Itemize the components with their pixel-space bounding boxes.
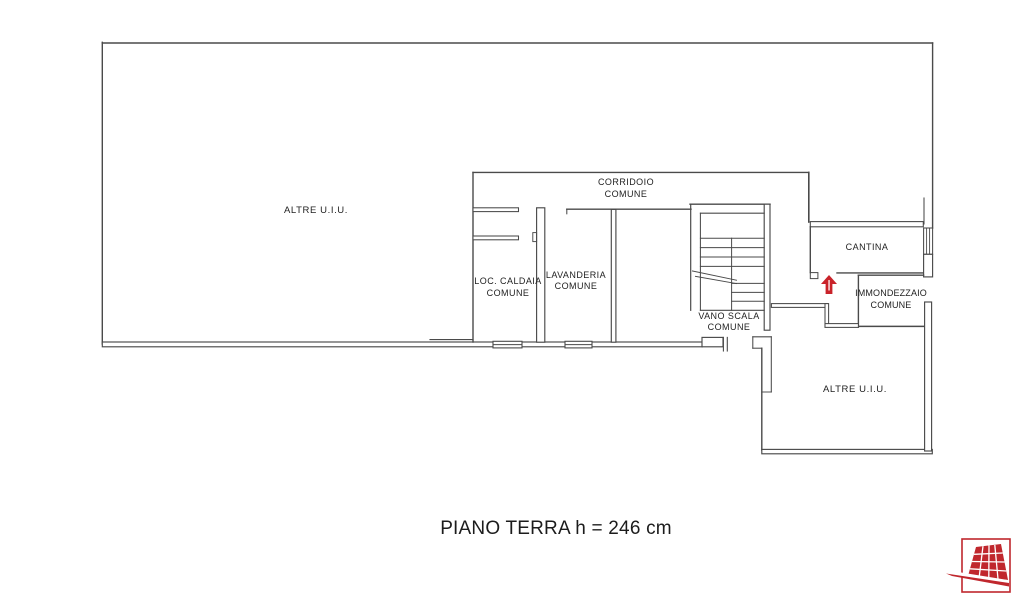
room-label-altre-left: ALTRE U.I.U. [284, 205, 348, 217]
corridoio-line2: COMUNE [598, 189, 654, 201]
vano-scala-line2: COMUNE [698, 323, 759, 335]
room-label-immondezzaio: IMMONDEZZAIO COMUNE [855, 288, 927, 312]
floor-plan-canvas: ALTRE U.I.U. CORRIDOIO COMUNE LOC. CALDA… [0, 0, 1024, 601]
brand-logo-icon [946, 536, 1014, 596]
plan-title: PIANO TERRA h = 246 cm [440, 518, 672, 540]
room-label-vano-scala: VANO SCALA COMUNE [698, 311, 759, 335]
room-label-corridoio: CORRIDOIO COMUNE [598, 177, 654, 201]
cantina-text: CANTINA [846, 242, 889, 254]
loc-caldaia-line2: COMUNE [474, 288, 541, 300]
immondezzaio-line1: IMMONDEZZAIO [855, 288, 927, 300]
entrance-arrow-icon [821, 275, 837, 295]
room-label-cantina: CANTINA [846, 242, 889, 254]
loc-caldaia-line1: LOC. CALDAIA [474, 276, 541, 288]
immondezzaio-line2: COMUNE [855, 300, 927, 312]
vano-scala-line1: VANO SCALA [698, 311, 759, 323]
room-label-loc-caldaia: LOC. CALDAIA COMUNE [474, 276, 541, 300]
lavanderia-line1: LAVANDERIA [546, 270, 606, 282]
corridoio-line1: CORRIDOIO [598, 177, 654, 189]
altre-bottom-text: ALTRE U.I.U. [823, 384, 887, 396]
altre-left-text: ALTRE U.I.U. [284, 205, 348, 217]
room-label-lavanderia: LAVANDERIA COMUNE [546, 270, 606, 294]
room-label-altre-bottom: ALTRE U.I.U. [823, 384, 887, 396]
lavanderia-line2: COMUNE [546, 282, 606, 294]
